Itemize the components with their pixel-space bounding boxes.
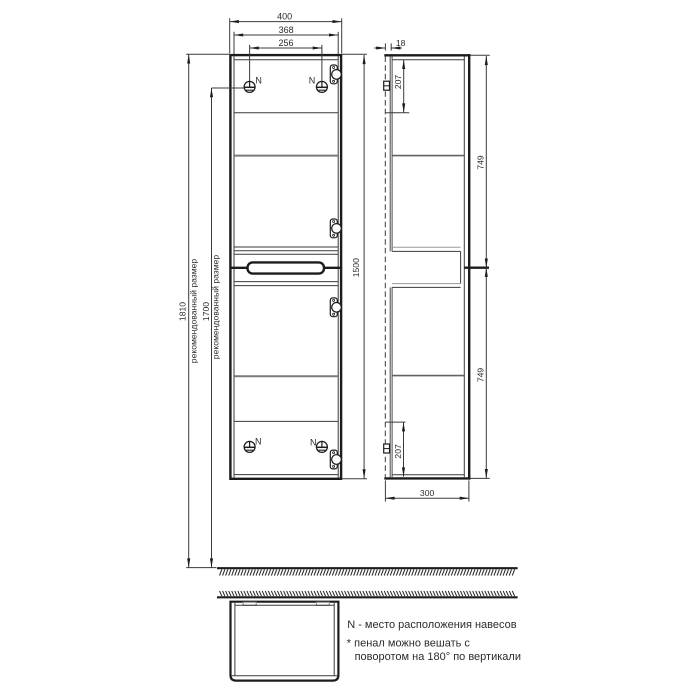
- svg-text:400: 400: [277, 12, 292, 22]
- svg-text:1700: 1700: [201, 302, 211, 321]
- svg-text:749: 749: [476, 368, 486, 383]
- svg-text:1810: 1810: [178, 302, 188, 321]
- svg-text:207: 207: [393, 75, 403, 90]
- svg-text:рекомендованный размер: рекомендованный размер: [188, 259, 198, 364]
- svg-text:749: 749: [476, 155, 486, 170]
- svg-text:поворотом на 180° по вертикал: поворотом на 180° по вертикали: [355, 651, 521, 663]
- svg-text:N: N: [255, 75, 262, 85]
- svg-text:207: 207: [393, 444, 403, 459]
- svg-text:1500: 1500: [351, 258, 361, 277]
- svg-text:рекомендованный размер: рекомендованный размер: [211, 255, 221, 360]
- svg-text:* пенал можно вешать с: * пенал можно вешать с: [347, 638, 471, 650]
- svg-text:256: 256: [278, 38, 293, 48]
- svg-text:18: 18: [396, 38, 406, 48]
- svg-text:300: 300: [420, 488, 435, 498]
- svg-text:N: N: [310, 438, 317, 448]
- svg-text:N: N: [309, 75, 316, 85]
- svg-text:N - место расположения навесов: N - место расположения навесов: [347, 619, 517, 631]
- svg-text:368: 368: [279, 25, 294, 35]
- svg-text:N: N: [255, 436, 262, 446]
